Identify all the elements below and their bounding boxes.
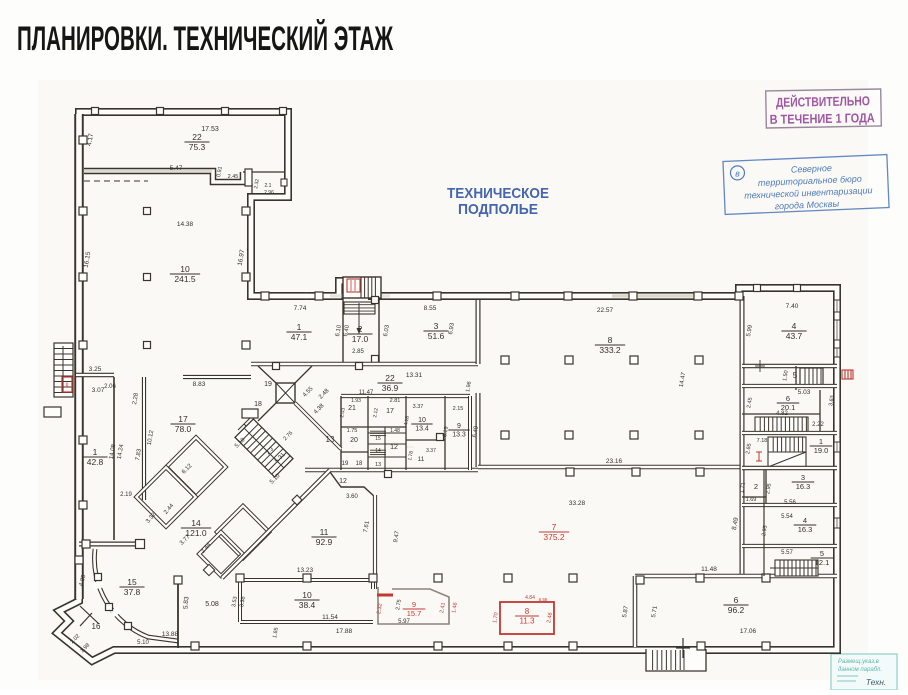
- svg-text:данном парабл.: данном парабл.: [838, 667, 882, 673]
- svg-text:ТЕХНИЧЕСКОЕ: ТЕХНИЧЕСКОЕ: [447, 185, 549, 202]
- svg-text:13.23: 13.23: [297, 567, 314, 574]
- svg-text:2.85: 2.85: [352, 349, 364, 355]
- svg-text:2.06: 2.06: [104, 384, 116, 390]
- svg-text:13.4: 13.4: [415, 426, 429, 433]
- svg-text:16.3: 16.3: [796, 482, 811, 491]
- svg-text:ПЛАНИРОВКИ. ТЕХНИЧЕСКИЙ ЭТАЖ: ПЛАНИРОВКИ. ТЕХНИЧЕСКИЙ ЭТАЖ: [17, 19, 393, 58]
- svg-text:11: 11: [418, 456, 425, 463]
- svg-text:1.75: 1.75: [347, 428, 358, 434]
- svg-text:36.9: 36.9: [382, 383, 399, 393]
- svg-text:23.16: 23.16: [606, 458, 623, 465]
- svg-text:4.84: 4.84: [525, 595, 535, 601]
- svg-text:11.54: 11.54: [322, 614, 338, 621]
- svg-text:38.4: 38.4: [299, 600, 316, 610]
- svg-text:1: 1: [297, 322, 302, 332]
- svg-text:18: 18: [356, 461, 363, 467]
- svg-text:2.45: 2.45: [228, 174, 239, 180]
- svg-text:3.60: 3.60: [346, 494, 358, 500]
- svg-text:17: 17: [178, 414, 188, 424]
- svg-text:96.2: 96.2: [728, 605, 745, 615]
- svg-text:5.83: 5.83: [182, 596, 190, 610]
- svg-text:13: 13: [375, 462, 381, 468]
- svg-text:3.37: 3.37: [426, 448, 436, 454]
- svg-text:3: 3: [434, 321, 439, 331]
- svg-text:20: 20: [350, 437, 358, 444]
- svg-text:15: 15: [375, 436, 381, 442]
- svg-text:12: 12: [339, 478, 347, 485]
- svg-text:5.57: 5.57: [781, 550, 793, 556]
- svg-text:3.07: 3.07: [92, 387, 105, 394]
- svg-text:7.74: 7.74: [294, 305, 307, 312]
- svg-text:5.54: 5.54: [781, 514, 793, 520]
- svg-text:17.88: 17.88: [336, 628, 353, 635]
- svg-text:11.3: 11.3: [520, 617, 536, 626]
- svg-text:Северное: Северное: [791, 163, 832, 175]
- svg-text:78.0: 78.0: [175, 424, 192, 434]
- svg-text:17.0: 17.0: [352, 334, 369, 344]
- svg-text:5.08: 5.08: [205, 601, 219, 608]
- svg-text:2.15: 2.15: [453, 406, 464, 412]
- svg-text:10: 10: [418, 417, 426, 424]
- svg-text:2.96: 2.96: [264, 190, 274, 196]
- svg-text:14: 14: [191, 518, 201, 528]
- svg-text:42.8: 42.8: [87, 457, 104, 467]
- svg-text:2: 2: [754, 482, 758, 491]
- svg-text:12.1: 12.1: [815, 558, 830, 567]
- svg-text:8.55: 8.55: [424, 305, 437, 312]
- svg-text:В ТЕЧЕНИЕ 1 ГОДА: В ТЕЧЕНИЕ 1 ГОДА: [770, 110, 876, 127]
- svg-text:8: 8: [525, 607, 530, 616]
- svg-text:12: 12: [390, 444, 398, 451]
- svg-text:9: 9: [412, 600, 416, 609]
- svg-text:241.5: 241.5: [174, 274, 196, 284]
- svg-text:13.3: 13.3: [452, 432, 466, 439]
- svg-text:47.1: 47.1: [291, 332, 308, 342]
- svg-text:2.81: 2.81: [390, 398, 401, 404]
- svg-text:2.22: 2.22: [812, 422, 824, 428]
- svg-text:2.19: 2.19: [120, 492, 132, 498]
- svg-text:13.88: 13.88: [162, 631, 179, 638]
- svg-text:9: 9: [457, 423, 461, 430]
- svg-text:19.0: 19.0: [814, 446, 829, 455]
- svg-text:4: 4: [792, 321, 797, 331]
- svg-text:3: 3: [801, 473, 805, 482]
- svg-text:37.8: 37.8: [124, 587, 141, 597]
- svg-text:4: 4: [803, 516, 807, 525]
- svg-text:5: 5: [793, 371, 798, 380]
- svg-text:10: 10: [302, 590, 312, 600]
- svg-text:17.53: 17.53: [201, 126, 219, 133]
- svg-text:19: 19: [264, 381, 272, 388]
- svg-text:6.58: 6.58: [539, 597, 548, 602]
- svg-text:51.6: 51.6: [428, 331, 445, 341]
- svg-text:5.47: 5.47: [170, 165, 183, 172]
- svg-text:2.1: 2.1: [265, 183, 272, 189]
- svg-text:333.2: 333.2: [599, 345, 621, 355]
- svg-text:22.57: 22.57: [597, 307, 614, 314]
- svg-text:375.2: 375.2: [543, 532, 565, 542]
- svg-text:5.97: 5.97: [398, 619, 410, 625]
- svg-text:17: 17: [386, 408, 394, 415]
- svg-text:11: 11: [320, 527, 329, 537]
- svg-text:1: 1: [93, 447, 98, 457]
- svg-text:ДЕЙСТВИТЕЛЬНО: ДЕЙСТВИТЕЛЬНО: [776, 93, 870, 110]
- svg-text:19: 19: [342, 461, 349, 467]
- svg-text:в: в: [735, 168, 740, 178]
- svg-text:3.25: 3.25: [89, 366, 102, 373]
- svg-text:Размещ.указ.в: Размещ.указ.в: [838, 659, 879, 665]
- svg-text:22: 22: [192, 132, 202, 142]
- svg-text:14.38: 14.38: [177, 221, 194, 228]
- svg-text:5.03: 5.03: [798, 389, 811, 396]
- svg-text:1.69: 1.69: [746, 497, 757, 503]
- svg-text:6: 6: [734, 595, 739, 605]
- svg-text:7: 7: [552, 522, 557, 532]
- svg-text:1: 1: [819, 437, 823, 446]
- svg-text:14: 14: [375, 448, 381, 454]
- svg-text:8.83: 8.83: [193, 381, 206, 388]
- svg-text:13: 13: [326, 435, 335, 444]
- svg-text:1.48: 1.48: [390, 428, 400, 434]
- svg-text:5.10: 5.10: [137, 640, 149, 646]
- svg-text:18: 18: [254, 401, 262, 408]
- svg-text:2: 2: [358, 324, 363, 334]
- svg-text:10: 10: [180, 264, 190, 274]
- svg-text:15: 15: [127, 577, 137, 587]
- svg-text:5: 5: [820, 549, 824, 558]
- svg-text:4.82: 4.82: [776, 411, 788, 417]
- svg-text:11.48: 11.48: [701, 566, 717, 573]
- svg-text:11.47: 11.47: [359, 390, 374, 396]
- svg-text:21: 21: [348, 405, 356, 412]
- svg-text:1.93: 1.93: [351, 398, 361, 404]
- svg-text:3.37: 3.37: [413, 404, 424, 410]
- svg-text:7.40: 7.40: [786, 303, 799, 310]
- svg-text:16: 16: [92, 622, 101, 631]
- svg-text:22: 22: [385, 373, 395, 383]
- svg-text:16.3: 16.3: [798, 525, 813, 534]
- svg-text:Техн.: Техн.: [866, 677, 887, 687]
- svg-text:33.28: 33.28: [569, 500, 586, 507]
- svg-text:75.3: 75.3: [189, 142, 206, 152]
- svg-text:13.31: 13.31: [406, 372, 423, 379]
- svg-text:II: II: [65, 383, 69, 389]
- svg-text:15.7: 15.7: [407, 609, 422, 618]
- svg-text:6: 6: [786, 394, 790, 403]
- svg-text:ПОДПОЛЬЕ: ПОДПОЛЬЕ: [458, 201, 538, 218]
- svg-text:5.56: 5.56: [784, 500, 796, 506]
- svg-text:8: 8: [608, 335, 613, 345]
- svg-text:92.9: 92.9: [316, 537, 333, 547]
- svg-text:17.06: 17.06: [740, 628, 757, 635]
- svg-text:7.18: 7.18: [757, 438, 768, 444]
- svg-text:43.7: 43.7: [786, 331, 803, 341]
